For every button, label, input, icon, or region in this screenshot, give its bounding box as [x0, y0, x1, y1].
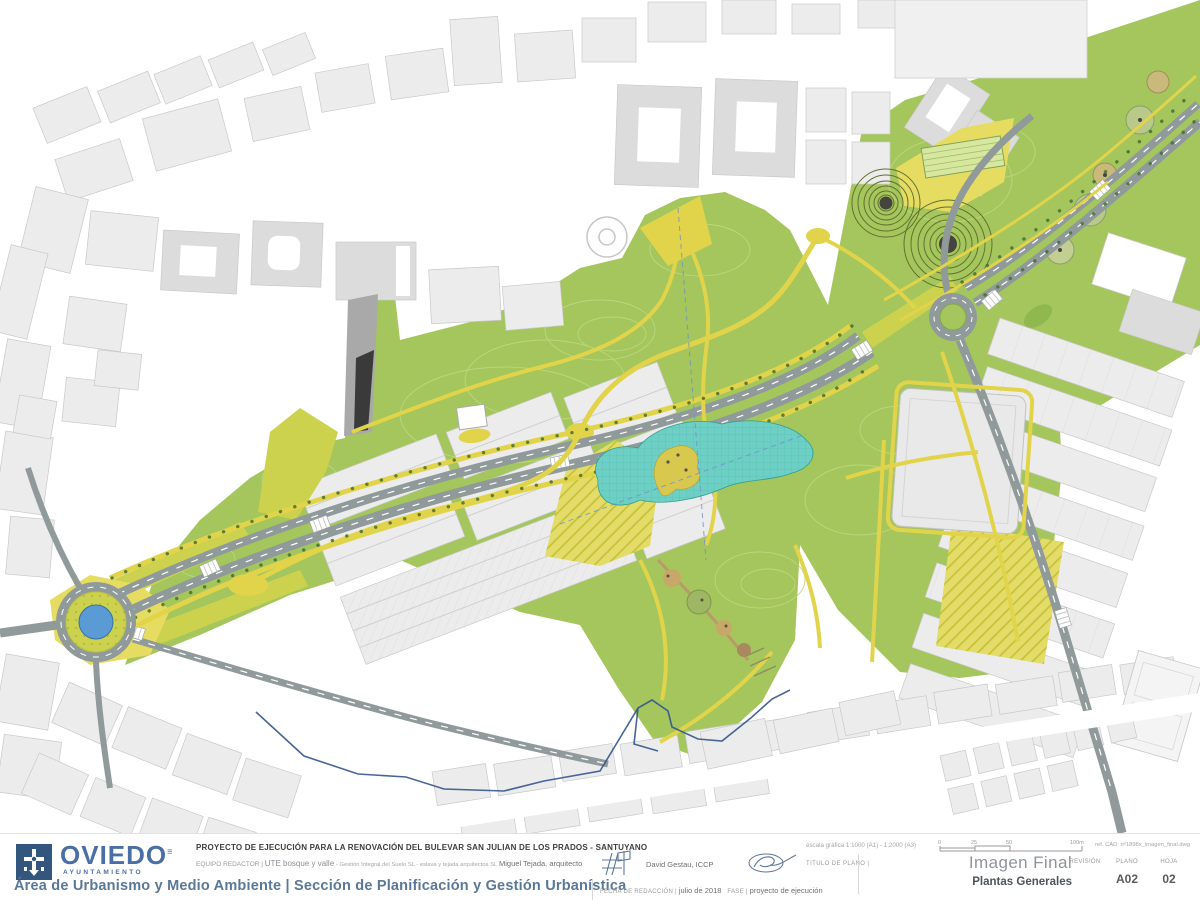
- roundabout-water-feature: [79, 605, 113, 639]
- divider-1: [592, 880, 593, 900]
- site-plan-svg: [0, 0, 1200, 833]
- title-block: OVIEDO≡ AYUNTAMIENTO Área de Urbanismo y…: [0, 833, 1200, 901]
- plano-value: A02: [1106, 872, 1148, 886]
- equipo-architect: Miguel Tejada, arquitecto: [499, 859, 582, 868]
- escala-grafica: escala gráfica 1:1000 (A1) - 1:2000 (A3): [806, 842, 916, 849]
- plano-subname: Plantas Generales: [860, 876, 1072, 888]
- hoja-label: HOJA: [1148, 859, 1190, 865]
- equipo-label: EQUIPO REDACTOR: [196, 861, 259, 868]
- fase-sep: |: [746, 889, 748, 895]
- hoja-value: 02: [1148, 872, 1190, 886]
- signature-david-gestau: [746, 851, 798, 875]
- brand-ayuntamiento: AYUNTAMIENTO: [63, 869, 143, 876]
- svg-text:50: 50: [1006, 840, 1012, 846]
- striped-plaza-east: [936, 524, 1064, 664]
- ref-cad: ref. CAD: nº1898x_imagen_final.dwg: [1095, 842, 1190, 848]
- plano-name: Imagen Final: [860, 853, 1072, 873]
- oviedo-logo: [16, 844, 52, 880]
- revision-value: [1064, 872, 1106, 886]
- svg-text:100m: 100m: [1070, 840, 1084, 846]
- revision-label: REVISIÓN: [1064, 859, 1106, 865]
- project-title: PROYECTO DE EJECUCIÓN PARA LA RENOVACIÓN…: [196, 843, 647, 852]
- roundabout-west: [56, 582, 136, 662]
- svg-text:0: 0: [938, 840, 941, 846]
- revision-plano-hoja-values: A02 02: [1064, 872, 1190, 886]
- fase-value: proyecto de ejecución: [750, 886, 823, 895]
- big-building-northeast: [895, 0, 1087, 78]
- fecha-fase-line: FECHA DE REDACCIÓN | julio de 2018 FASE …: [600, 886, 823, 895]
- plano-label: PLANO: [1106, 859, 1148, 865]
- divider-2: [858, 854, 859, 894]
- equipo-firms: - Gestión Integral del Suelo SL - eslava…: [336, 862, 497, 868]
- brand-trademark: ≡: [167, 846, 172, 856]
- fecha-value: julio de 2018: [679, 886, 722, 895]
- svg-text:25: 25: [971, 840, 977, 846]
- equipo-sep: |: [261, 861, 263, 868]
- revision-plano-hoja-labels: REVISIÓN PLANO HOJA: [1064, 859, 1190, 865]
- roundabout-northeast: [929, 293, 977, 341]
- site-plan-map: [0, 0, 1200, 833]
- equipo-team: UTE bosque y valle: [265, 859, 334, 868]
- equipo-redactor-line: EQUIPO REDACTOR | UTE bosque y valle - G…: [196, 859, 582, 868]
- engineer-name: David Gestau, ICCP: [646, 860, 714, 869]
- fecha-sep: |: [675, 889, 677, 895]
- victory-cross-icon: [16, 844, 52, 880]
- fase-label: FASE: [727, 889, 744, 895]
- roundabout-city-north: [587, 217, 627, 257]
- department-line: Área de Urbanismo y Medio Ambiente | Sec…: [14, 878, 626, 894]
- brand-oviedo: OVIEDO≡: [60, 840, 172, 871]
- brand-city-name: OVIEDO: [60, 840, 167, 870]
- signature-miguel-tejada: [598, 849, 640, 879]
- fecha-label: FECHA DE REDACCIÓN: [600, 889, 673, 895]
